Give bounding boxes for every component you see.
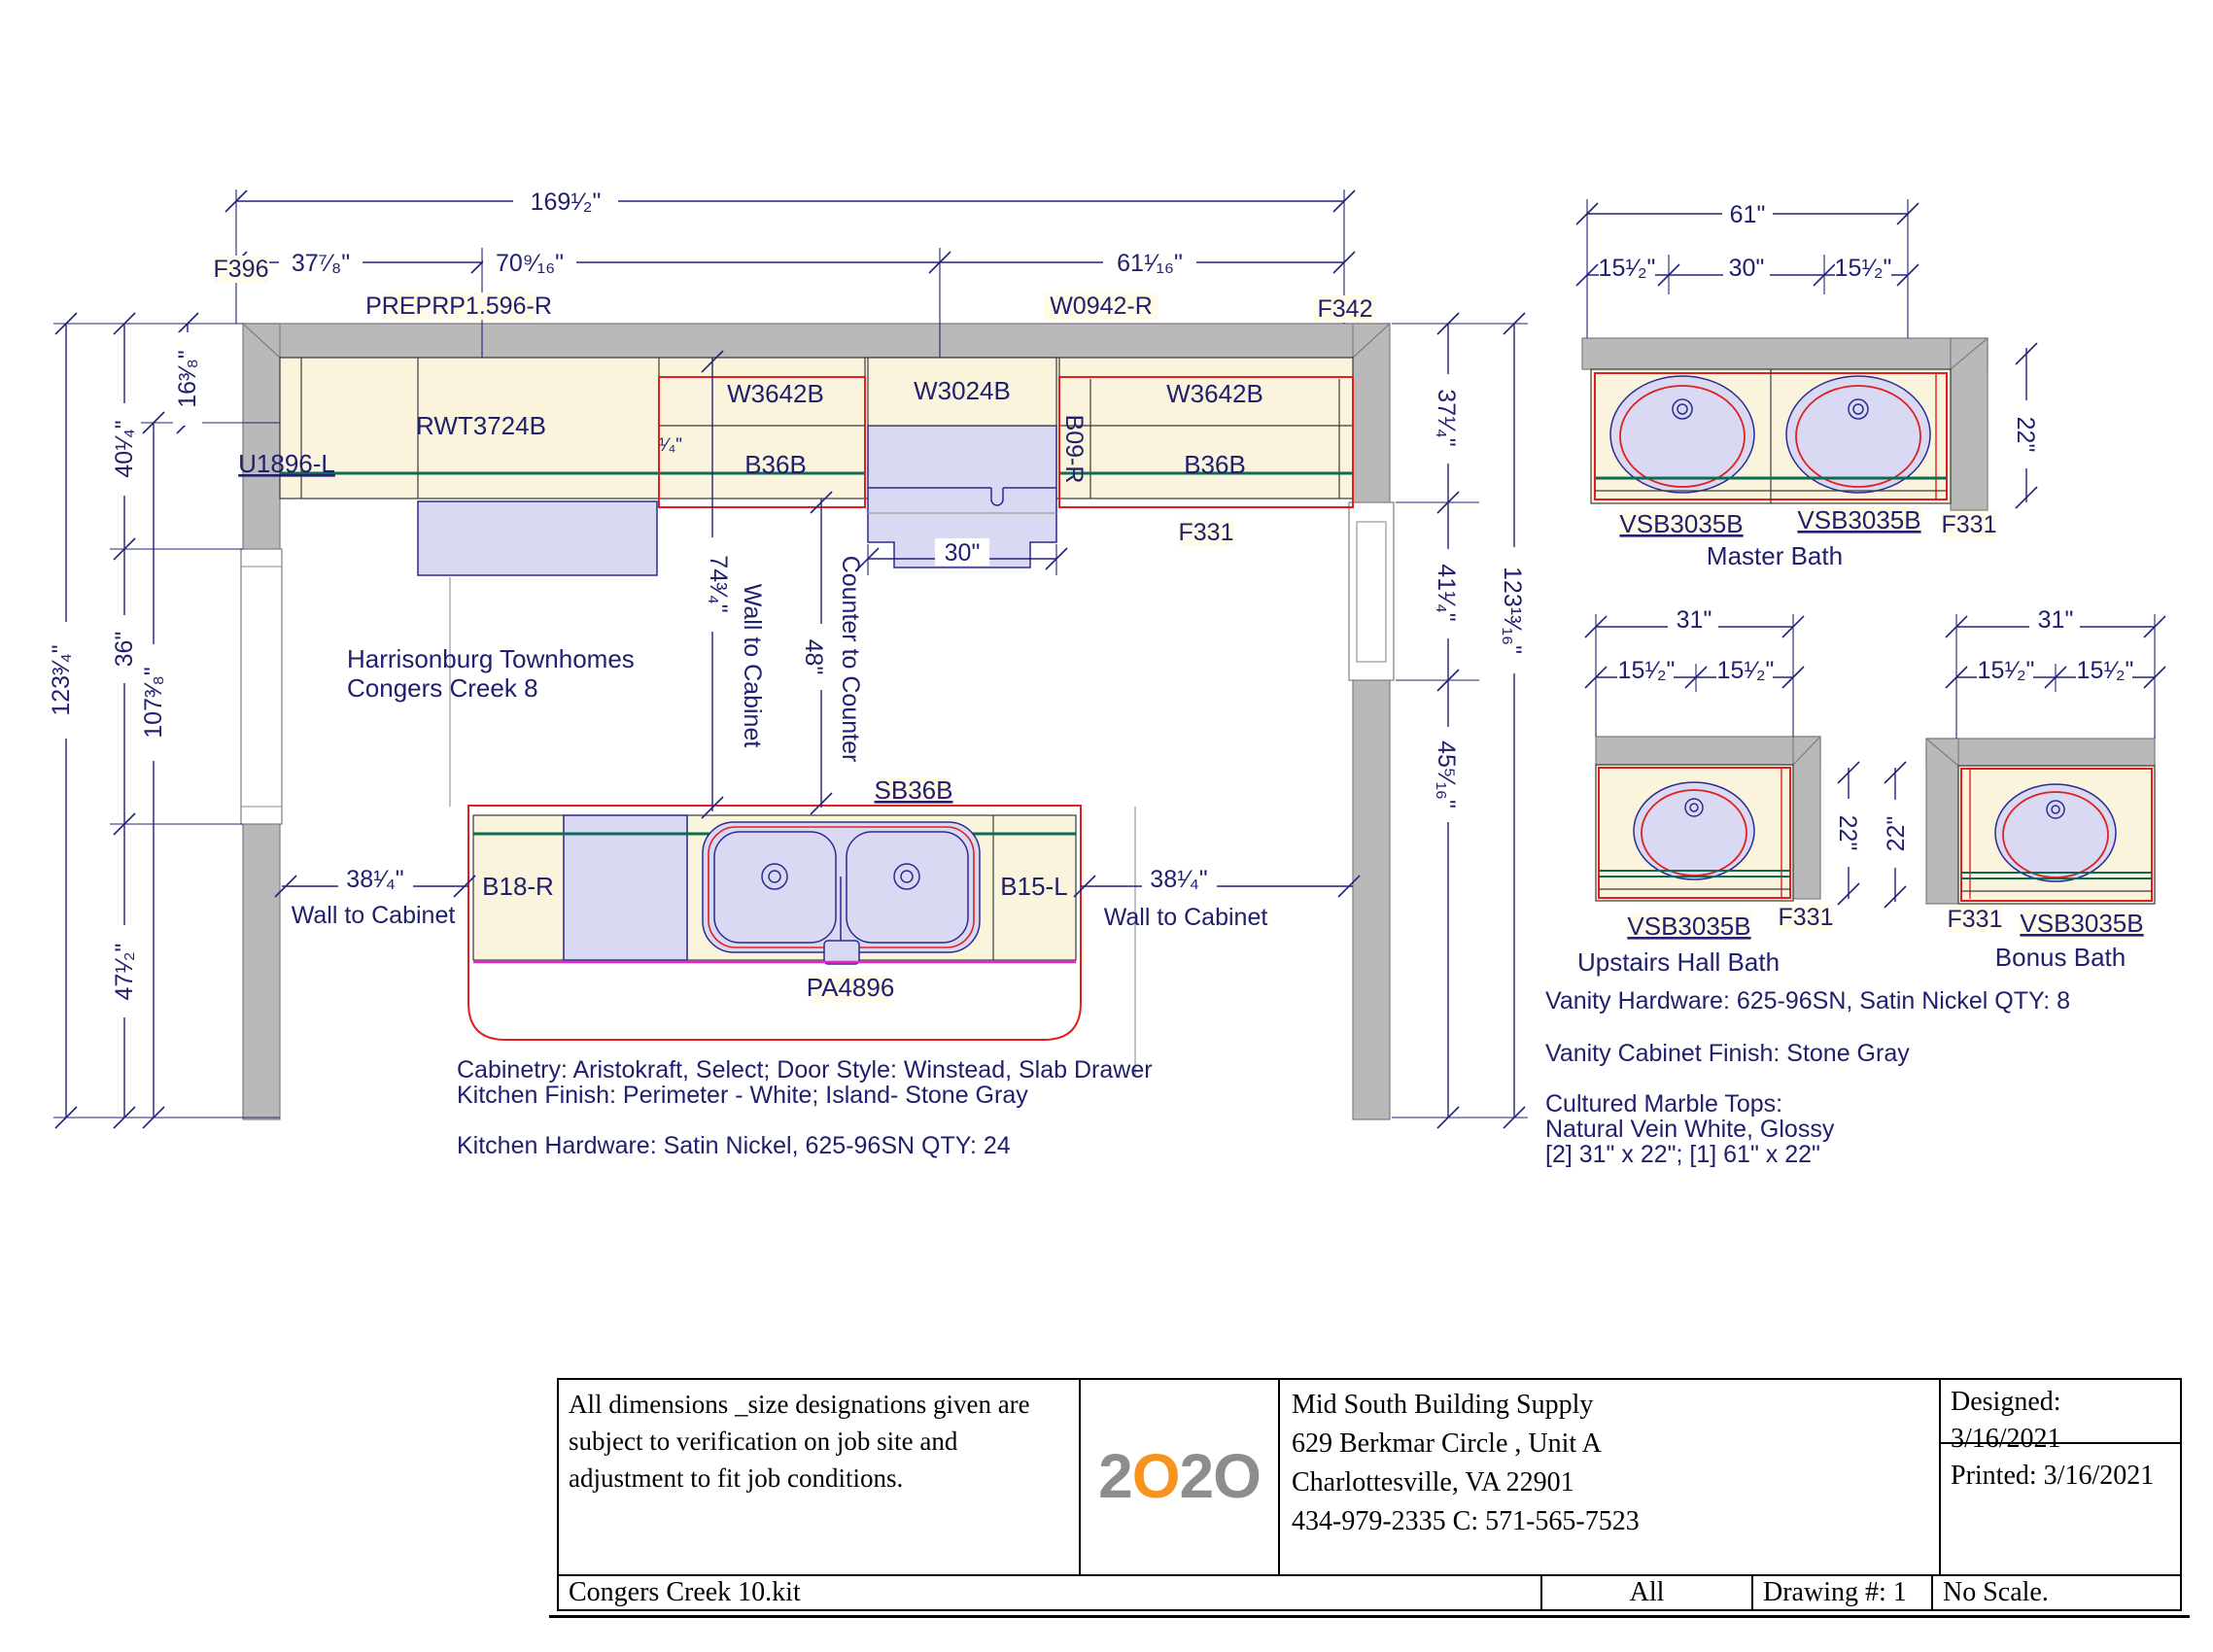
master-dim-depth: 22": [2012, 417, 2039, 453]
logo-char-3: 2: [1180, 1441, 1214, 1511]
dim-left-overall: 123³⁄₄": [48, 644, 75, 715]
master-dim-right: 15¹⁄₂": [1835, 255, 1892, 282]
floor-plan-page: 169¹⁄₂" 37⁷⁄₈" 70⁹⁄₁₆" 61¹⁄₁₆" F396 PREP…: [0, 0, 2213, 1652]
label-b18: B18-R: [482, 872, 554, 901]
dim-seg2: 70⁹⁄₁₆": [496, 250, 564, 277]
dim-left-upper: 40¹⁄₄": [111, 420, 138, 477]
master-vsb-1: VSB3035B: [1619, 509, 1743, 538]
kitchen-note-3: Kitchen Hardware: Satin Nickel, 625-96SN…: [457, 1132, 1011, 1159]
company-phone: 434-979-2335 C: 571-565-7523: [1292, 1502, 1927, 1541]
label-u1896: U1896-L: [238, 449, 335, 478]
dim-wall-to-cabinet-v-label: Wall to Cabinet: [739, 584, 766, 748]
file-name: Congers Creek 10.kit: [559, 1576, 1540, 1611]
logo-char-2: O: [1132, 1441, 1180, 1511]
vanity-note-5: [2] 31" x 22"; [1] 61" x 22": [1545, 1141, 1820, 1168]
label-pa4896: PA4896: [807, 973, 895, 1002]
master-f331: F331: [1942, 511, 1997, 538]
printed-date: Printed: 3/16/2021: [1951, 1458, 2170, 1495]
company-address-1: 629 Berkmar Circle , Unit A: [1292, 1425, 1927, 1463]
2020-logo: 2O2O: [1081, 1440, 1278, 1512]
hall-dim-left: 15¹⁄₂": [1618, 657, 1676, 684]
label-w0942: W0942-R: [1050, 293, 1153, 320]
title-block-bottom-row: Congers Creek 10.kit All Drawing #: 1 No…: [559, 1574, 2180, 1609]
dim-right-overall: 123¹³⁄₁₆": [1499, 567, 1526, 654]
title-block: All dimensions _size designations given …: [557, 1378, 2182, 1611]
dim-left-top: 16³⁄₈": [174, 350, 201, 408]
label-w3642-left: W3642B: [727, 379, 824, 408]
dishwasher: [564, 815, 687, 960]
hall-dim-right: 15¹⁄₂": [1717, 657, 1775, 684]
label-f331-kitchen: F331: [1179, 519, 1234, 546]
dim-overall-width: 169¹⁄₂": [531, 189, 602, 216]
hall-f331: F331: [1779, 904, 1834, 931]
project-line1: Harrisonburg Townhomes: [347, 644, 635, 673]
bonus-dim-right: 15¹⁄₂": [2077, 657, 2134, 684]
project-line2: Congers Creek 8: [347, 673, 538, 703]
disclaimer-text: All dimensions _size designations given …: [569, 1390, 1030, 1493]
faucet: [824, 941, 859, 964]
sheet-scope: All: [1540, 1576, 1751, 1611]
label-w3642-right: W3642B: [1166, 379, 1263, 408]
vanity-note-3: Cultured Marble Tops:: [1545, 1090, 1782, 1118]
dim-quarter-filler: ¹⁄₄": [659, 435, 682, 456]
dim-right-clearance: 38¹⁄₄": [1150, 866, 1207, 893]
bonus-dim-left: 15¹⁄₂": [1978, 657, 2035, 684]
label-preprp: PREPRP1.596-R: [365, 293, 552, 320]
label-w3024: W3024B: [914, 376, 1011, 405]
dim-right-mid: 41¹⁄₄": [1433, 564, 1460, 621]
master-dim-overall: 61": [1730, 201, 1766, 228]
kitchen-note-2: Kitchen Finish: Perimeter - White; Islan…: [457, 1082, 1028, 1109]
kitchen-island: [468, 806, 1081, 1040]
bonus-vsb: VSB3035B: [2020, 909, 2143, 938]
hall-dim-depth: 22": [1834, 815, 1861, 851]
dim-right-lower: 45⁵⁄₁₆": [1433, 740, 1460, 809]
left-window: [241, 549, 282, 824]
dim-left-107: 107³⁄₈": [140, 667, 167, 738]
drawing-number: Drawing #: 1: [1751, 1576, 1931, 1611]
dim-left-clearance-label: Wall to Cabinet: [292, 902, 456, 929]
bonus-title: Bonus Bath: [1995, 943, 2126, 972]
vanity-note-2: Vanity Cabinet Finish: Stone Gray: [1545, 1040, 1910, 1067]
label-f396: F396: [214, 256, 269, 283]
dim-seg1: 37⁷⁄₈": [292, 250, 350, 277]
hall-title: Upstairs Hall Bath: [1577, 947, 1780, 977]
label-rwt3724: RWT3724B: [416, 411, 546, 440]
dim-counter-to-counter: 48": [800, 639, 827, 675]
dim-seg3: 61¹⁄₁₆": [1117, 250, 1183, 277]
label-sb36: SB36B: [875, 775, 953, 805]
disclaimer-cell: All dimensions _size designations given …: [559, 1380, 1081, 1574]
hall-dim-overall: 31": [1677, 606, 1712, 634]
company-address-2: Charlottesville, VA 22901: [1292, 1463, 1927, 1502]
dim-right-clearance-label: Wall to Cabinet: [1104, 904, 1268, 931]
master-vsb-2: VSB3035B: [1797, 505, 1920, 534]
master-bath: [1576, 199, 2037, 510]
dim-left-bottom: 47¹⁄₂": [111, 944, 138, 1001]
dim-left-mid: 36": [111, 632, 138, 668]
dim-wall-to-cabinet-v: 74³⁄₄": [705, 555, 732, 612]
company-cell: Mid South Building Supply 629 Berkmar Ci…: [1280, 1380, 1941, 1574]
title-block-underline: [549, 1615, 2190, 1618]
master-title: Master Bath: [1707, 541, 1843, 570]
label-f342: F342: [1318, 295, 1373, 323]
vanity-note-1: Vanity Hardware: 625-96SN, Satin Nickel …: [1545, 987, 2070, 1015]
master-dim-left: 15¹⁄₂": [1599, 255, 1656, 282]
bonus-f331: F331: [1948, 906, 2003, 933]
label-b15: B15-L: [1000, 872, 1067, 901]
company-name: Mid South Building Supply: [1292, 1386, 1927, 1425]
bonus-dim-overall: 31": [2038, 606, 2074, 634]
kitchen-note-1: Cabinetry: Aristokraft, Select; Door Sty…: [457, 1056, 1153, 1084]
bonus-dim-depth: 22": [1883, 816, 1910, 852]
vanity-note-4: Natural Vein White, Glossy: [1545, 1116, 1835, 1143]
dim-range-width: 30": [945, 539, 981, 567]
kitchen-sink: [703, 822, 980, 964]
label-b09: B09-R: [1060, 415, 1088, 484]
label-b36b-right: B36B: [1184, 450, 1246, 479]
dim-left-clearance: 38¹⁄₄": [346, 866, 403, 893]
logo-cell: 2O2O: [1081, 1380, 1280, 1574]
logo-char-4: O: [1213, 1441, 1261, 1511]
designed-date: Designed: 3/16/2021: [1951, 1384, 2170, 1458]
logo-char-1: 2: [1098, 1441, 1132, 1511]
label-b36b-left: B36B: [744, 450, 807, 479]
dates-cell: Designed: 3/16/2021 Printed: 3/16/2021: [1941, 1380, 2180, 1574]
dim-right-upper: 37¹⁄₄": [1433, 389, 1460, 446]
dim-counter-to-counter-label: Counter to Counter: [837, 556, 864, 763]
right-window: [1349, 502, 1394, 680]
scale-note: No Scale.: [1931, 1576, 2180, 1611]
master-dim-center: 30": [1729, 255, 1765, 282]
hall-vsb: VSB3035B: [1627, 912, 1750, 941]
refrigerator: [418, 501, 657, 575]
